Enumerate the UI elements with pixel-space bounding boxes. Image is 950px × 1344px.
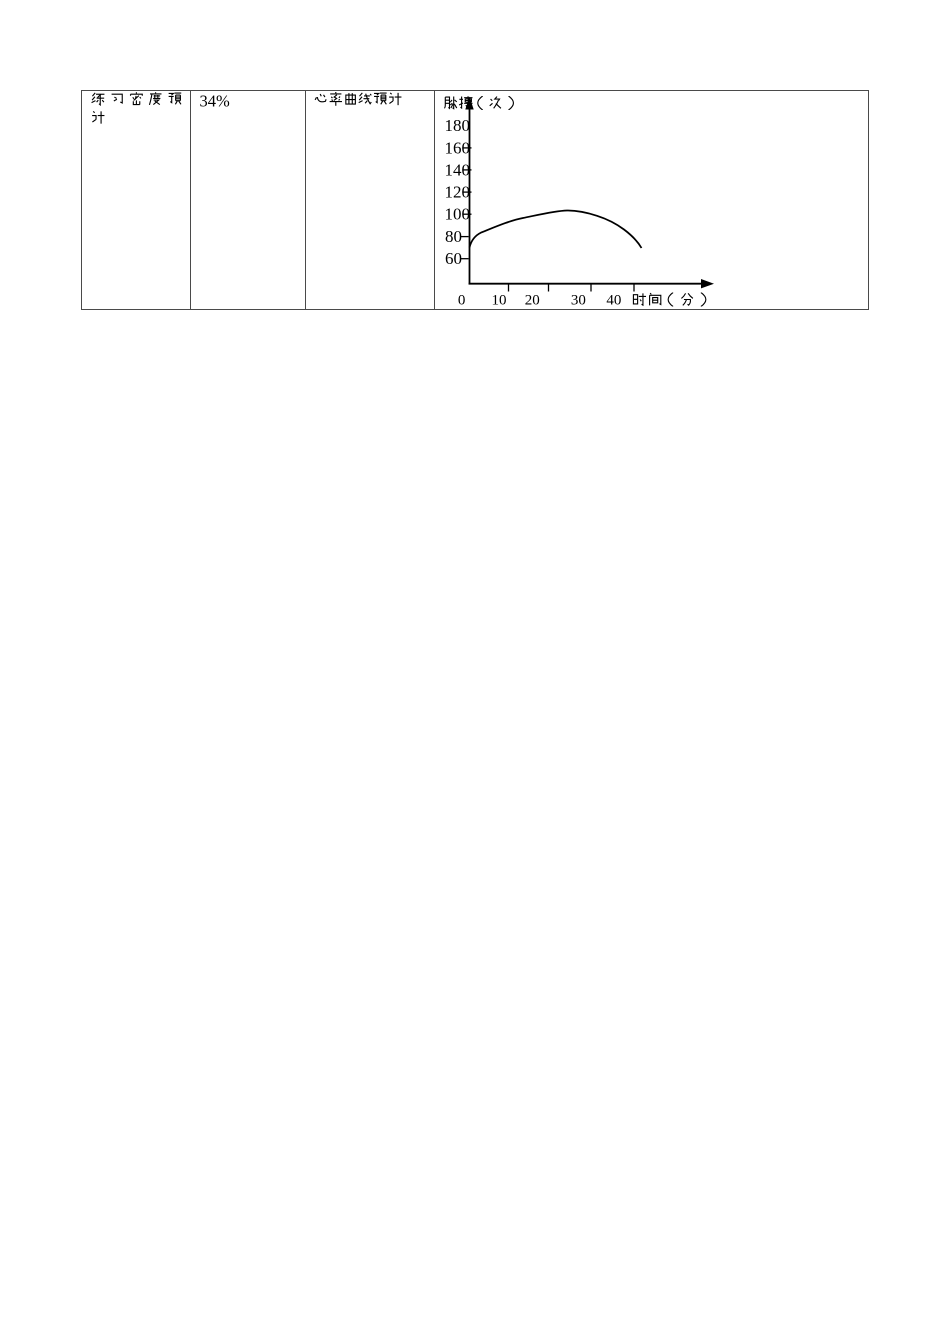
svg-text:30: 30 [571,292,586,308]
svg-text:0: 0 [458,292,466,308]
svg-text:140: 140 [445,160,471,179]
svg-text:120: 120 [445,183,471,202]
svg-text:180: 180 [445,116,471,135]
svg-text:100: 100 [445,205,471,224]
svg-text:34%: 34% [200,92,231,111]
svg-text:60: 60 [445,249,462,268]
svg-text:80: 80 [445,227,462,246]
svg-text:40: 40 [606,292,621,308]
svg-text:160: 160 [445,138,471,157]
svg-text:20: 20 [525,292,540,308]
svg-text:10: 10 [492,292,507,308]
